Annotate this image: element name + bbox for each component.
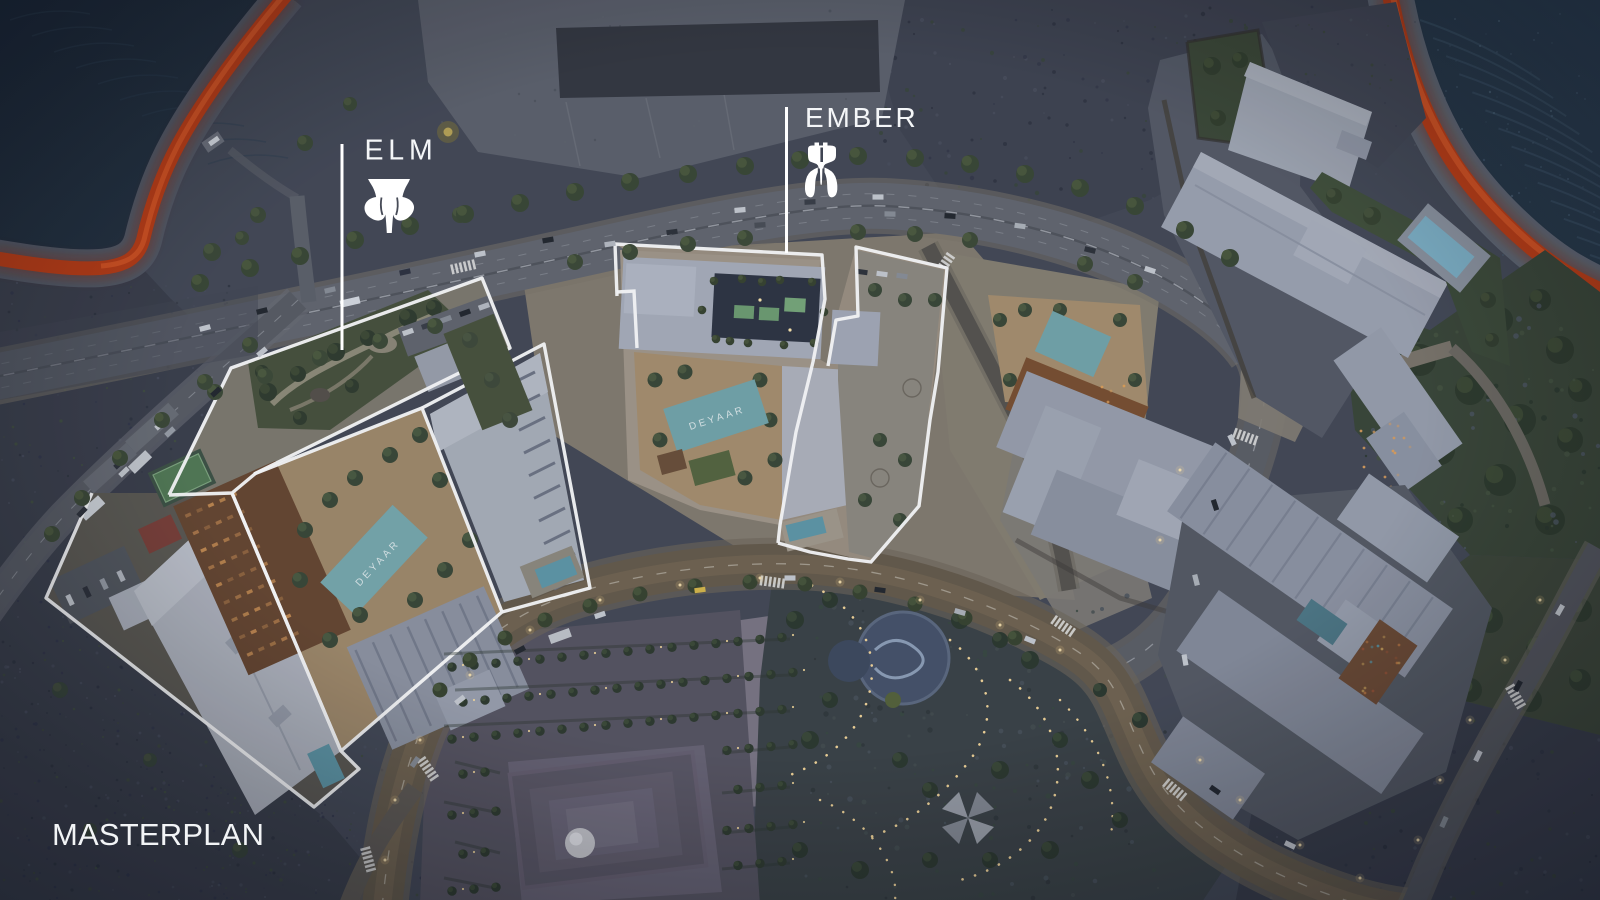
svg-text:EMBER: EMBER (805, 102, 919, 133)
svg-text:MASTERPLAN: MASTERPLAN (52, 817, 264, 852)
svg-text:ELM: ELM (365, 135, 438, 167)
